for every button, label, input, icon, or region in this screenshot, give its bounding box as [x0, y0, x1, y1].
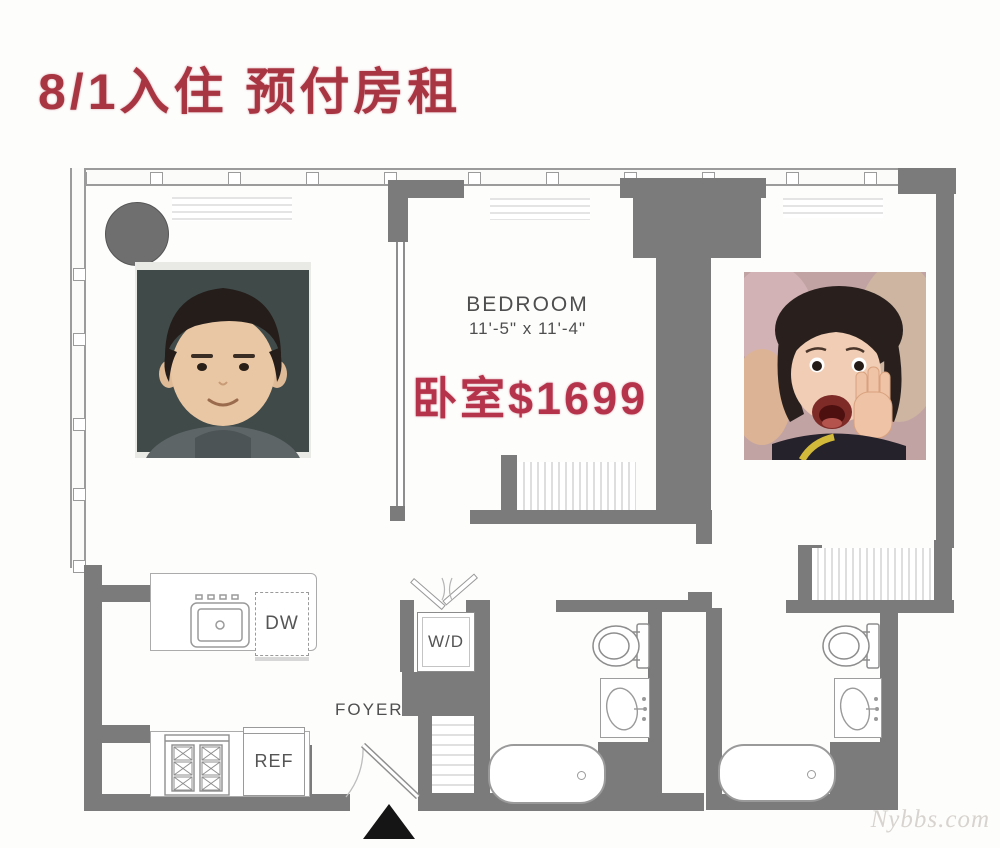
- window-band-left: [70, 168, 86, 568]
- bedroom-label: BEDROOM: [420, 293, 635, 317]
- column-circle: [105, 202, 169, 266]
- wall-segment: [934, 540, 952, 608]
- washer-dryer-box: W/D: [417, 612, 475, 672]
- bathtub: [488, 744, 606, 804]
- wall-segment: [400, 600, 414, 672]
- washer-dryer-label: W/D: [418, 613, 474, 671]
- radiator-lines: [172, 197, 292, 221]
- watermark-text: Nybbs.com: [871, 806, 990, 834]
- wall-segment: [633, 198, 761, 258]
- bedroom-west-wall: [396, 242, 405, 506]
- vanity-sink: [834, 678, 882, 738]
- wall-segment: [798, 545, 812, 603]
- dishwasher-box: DW: [255, 592, 309, 656]
- entry-door: [340, 738, 430, 808]
- wall-segment: [388, 180, 408, 242]
- bedroom-closet-hatch: [518, 462, 636, 510]
- wall-segment: [656, 258, 711, 512]
- window-band-top: [70, 168, 956, 186]
- kitchen-sink-icon: [188, 593, 254, 649]
- wd-door-squiggle: [438, 576, 456, 602]
- entry-closet-shelves: [432, 716, 474, 793]
- wall-segment: [688, 592, 712, 602]
- entry-arrow-icon: [363, 804, 415, 839]
- radiator-lines: [490, 198, 590, 220]
- wall-segment: [620, 178, 766, 198]
- dishwasher-label: DW: [256, 593, 308, 655]
- bedroom-dimensions: 11'-5" x 11'-4": [420, 319, 635, 339]
- refrigerator-label: REF: [244, 728, 304, 795]
- wall-segment: [390, 506, 405, 521]
- floor-plan-image: 8/1入住 预付房租: [0, 0, 1000, 848]
- wall-segment: [830, 742, 882, 797]
- wall-segment: [501, 455, 517, 511]
- title-text: 8/1入住 预付房租: [38, 52, 461, 124]
- boy-meme-photo: [135, 262, 311, 458]
- bedroom-price-annotation: 卧室$1699: [412, 362, 648, 427]
- wall-segment: [470, 510, 712, 524]
- wall-segment: [786, 600, 954, 613]
- wall-segment: [898, 168, 956, 194]
- wall-segment: [402, 672, 484, 716]
- girl-meme-photo: [744, 272, 926, 460]
- wall-segment: [936, 192, 954, 548]
- refrigerator-box: REF: [243, 727, 305, 796]
- bathtub: [718, 744, 836, 802]
- foyer-label: FOYER: [335, 700, 404, 720]
- toilet-icon: [590, 620, 654, 672]
- radiator-lines: [783, 198, 883, 218]
- toilet-icon: [820, 620, 884, 672]
- wall-segment: [84, 725, 150, 743]
- vanity-sink: [600, 678, 650, 738]
- wall-segment: [696, 510, 712, 544]
- stove-icon: [163, 729, 231, 797]
- right-room-closet-hatch: [812, 548, 934, 600]
